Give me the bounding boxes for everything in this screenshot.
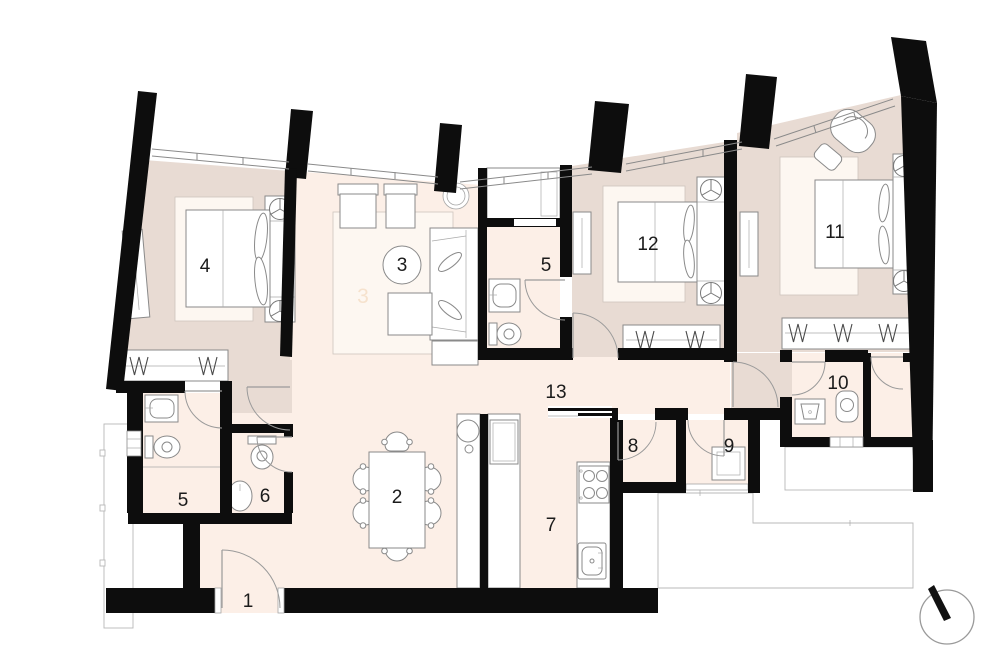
wall-interior: [748, 420, 760, 493]
ceiling-fan-icon: [701, 180, 722, 201]
wall-interior: [220, 381, 232, 513]
room-label-entry: 1: [243, 591, 254, 612]
fridge: [490, 420, 518, 464]
floor-plan-page: 3 1 2 3 4 5 5 6 7 8 9 10 11 12 13: [0, 0, 996, 669]
vestibule-floor: [228, 355, 292, 413]
wall-interior: [724, 140, 737, 362]
wall-interior: [485, 348, 573, 360]
room-label-store: 8: [628, 436, 639, 457]
bathroom-top-fixtures: [489, 279, 521, 345]
wall-interior: [780, 437, 830, 447]
wall-interior: [226, 424, 292, 433]
wall-interior: [116, 381, 185, 393]
coffee-table: [388, 293, 432, 335]
toilet: [497, 323, 521, 345]
wall-interior: [183, 524, 200, 588]
room-label-bathroom-6: 6: [260, 486, 271, 507]
counter-left: [457, 414, 480, 588]
armchair: [340, 194, 376, 228]
room-label-living: 3: [397, 255, 408, 276]
ceiling-fan-icon: [701, 283, 722, 304]
wall-bottom: [106, 588, 218, 613]
room-label-utility: 9: [724, 436, 735, 457]
shelf: [686, 484, 748, 490]
wall-interior: [780, 350, 792, 362]
compass-icon: [920, 585, 974, 644]
wall-pier: [434, 123, 462, 193]
ledge-tick: [100, 505, 105, 511]
sink: [795, 399, 825, 424]
service-shaft: [487, 168, 560, 220]
wall-interior: [863, 437, 915, 447]
wall-interior: [284, 472, 293, 513]
wall-interior: [478, 168, 487, 360]
room-label-bedroom-2: 11: [825, 222, 845, 243]
toilet: [154, 436, 180, 458]
toilet: [251, 445, 273, 469]
wall-interior: [560, 165, 572, 277]
wall-interior: [655, 408, 688, 420]
wall-interior: [903, 353, 915, 362]
room-label-bedroom-3: 12: [637, 234, 658, 255]
wall-interior: [676, 420, 686, 482]
toilet-tank: [489, 323, 497, 345]
window: [830, 437, 863, 447]
toilet: [836, 391, 858, 422]
toilet-tank: [145, 436, 153, 458]
room-label-bedroom-1: 4: [200, 256, 211, 277]
armchair-back: [338, 184, 378, 195]
wall-interior: [724, 408, 792, 420]
side-table: [432, 341, 478, 365]
sofa: [430, 228, 478, 340]
ledge-tick: [100, 450, 105, 456]
wall-interior: [863, 353, 871, 437]
floor-plan-drawing: 3 1 2 3 4 5 5 6 7 8 9 10 11 12 13: [0, 0, 996, 669]
right-ledge: [785, 447, 913, 490]
shaft-access: [514, 219, 556, 226]
room-label-hall: 13: [545, 382, 566, 403]
wall-pier: [891, 37, 937, 103]
sliding-door: [548, 406, 612, 418]
wall-interior: [618, 348, 730, 360]
wall-bottom: [281, 588, 658, 613]
wall-interior: [913, 440, 933, 492]
armchair-back: [384, 184, 417, 195]
room-label-kitchen: 7: [546, 515, 557, 536]
hallway-floor: [292, 357, 730, 414]
wall-interior: [284, 424, 293, 437]
room-label-bathroom-top: 5: [541, 255, 552, 276]
terrace: [658, 493, 913, 588]
room-label-dining: 2: [392, 487, 403, 508]
room-label-bathroom-10: 10: [827, 373, 848, 394]
wall-interior: [610, 420, 623, 588]
wardrobe: [118, 350, 228, 381]
ghost-label: 3: [357, 285, 369, 308]
store-floor: [618, 420, 676, 482]
wall-interior: [825, 350, 868, 362]
wall-interior: [128, 513, 292, 524]
ledge-tick: [100, 560, 105, 566]
armchair: [386, 194, 415, 228]
room-label-bathroom-left: 5: [178, 490, 189, 511]
wall-interior: [480, 414, 488, 588]
closet-floor: [871, 353, 915, 437]
bath-window: [127, 431, 141, 456]
